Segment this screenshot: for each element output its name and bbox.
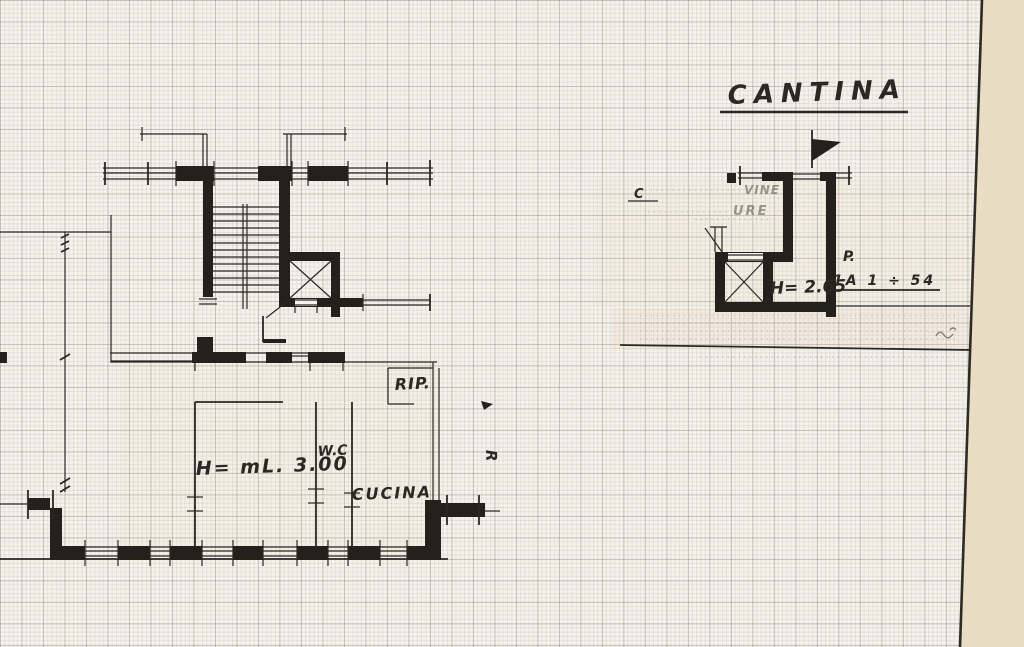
faint-annotations: C VINE URE [628,183,780,219]
reference-numbers: P. 1A 1 ÷ 54 [830,249,940,290]
cantina-title: CANTINA [727,75,907,111]
shaft-x-mark [290,261,331,298]
stairs [213,204,279,309]
small-arrow-mark [481,401,493,410]
ref-value: 1A 1 ÷ 54 [833,273,936,289]
bottom-wall-windows [0,540,448,566]
c-mark: C [634,187,644,202]
kitchen-label: CUCINA [351,482,432,504]
apartment-plan: RIP. [0,127,500,566]
pencil-squiggle [936,328,956,338]
cantina-plan: CANTINA [620,75,971,357]
wc-label: W.C [317,442,348,460]
paper-edge [960,0,1024,647]
r-mark: R [482,450,500,462]
baseline-and-notes [620,316,971,357]
rip-room: RIP. [388,368,433,404]
faint-note-top: VINE [744,183,780,197]
floorplan-drawing: RIP. [0,0,1024,647]
left-wall-window [0,490,62,560]
top-wall-windows [103,160,433,186]
stairwell [197,180,290,354]
balcony-parapet [140,127,347,168]
faint-note-bottom: URE [733,204,768,219]
entry-flag [812,130,841,168]
scanned-floorplan-page: RIP. [0,0,1024,647]
ref-label: P. [843,249,855,265]
cantina-shaft-x [725,262,763,302]
rip-label: RIP. [394,373,431,394]
landing-window [340,294,430,311]
